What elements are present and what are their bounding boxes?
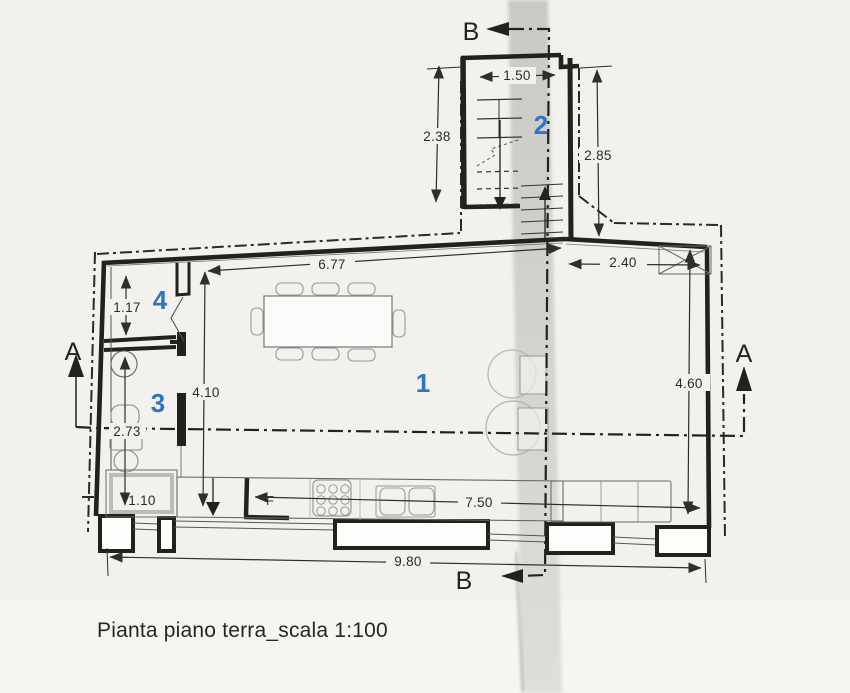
pillar — [547, 524, 613, 553]
dim-label-vestibule: 1.17 — [113, 300, 140, 315]
room-label-3: 3 — [151, 388, 165, 418]
plan-title: Pianta piano terra_scala 1:100 — [97, 619, 388, 642]
wall-segment — [335, 521, 488, 548]
dim-label-tub-width: 1.10 — [128, 493, 155, 508]
scanned-floor-plan-page: 1.50 2.38 2.85 6.77 2.40 4.60 1.17 4.10 … — [0, 0, 850, 693]
dim-label-mid-vertical: 4.10 — [192, 385, 219, 400]
table-top — [264, 296, 392, 347]
fixture-f-label: F — [266, 493, 274, 508]
dim-label-stair-width: 1.50 — [503, 68, 530, 83]
pillar — [100, 516, 133, 551]
room-label-1: 1 — [416, 368, 430, 398]
paper-bottom-fade — [0, 600, 850, 693]
dim-label-stair-left: 2.38 — [423, 129, 450, 144]
dim-label-living-top: 6.77 — [318, 257, 345, 272]
bath-divider-wall — [177, 393, 186, 446]
section-letter-b-bottom: B — [456, 567, 473, 595]
section-letter-b-top: B — [463, 18, 480, 46]
room-label-2: 2 — [534, 110, 548, 140]
pillar — [159, 518, 174, 551]
pillar — [657, 527, 709, 555]
dim-label-stair-right: 2.85 — [584, 148, 611, 163]
dim-label-bath-height: 2.73 — [113, 424, 140, 439]
section-letter-a-left: A — [65, 338, 82, 366]
section-letter-a-right: A — [736, 340, 753, 368]
dim-label-kitchen-run: 7.50 — [465, 495, 492, 510]
dim-label-right-wing-height: 4.60 — [675, 376, 702, 391]
dim-label-total-width: 9.80 — [394, 554, 421, 569]
floor-plan-drawing: 1.50 2.38 2.85 6.77 2.40 4.60 1.17 4.10 … — [0, 0, 850, 693]
dim-label-right-wing-width: 2.40 — [609, 255, 636, 270]
room-label-4: 4 — [153, 285, 168, 315]
